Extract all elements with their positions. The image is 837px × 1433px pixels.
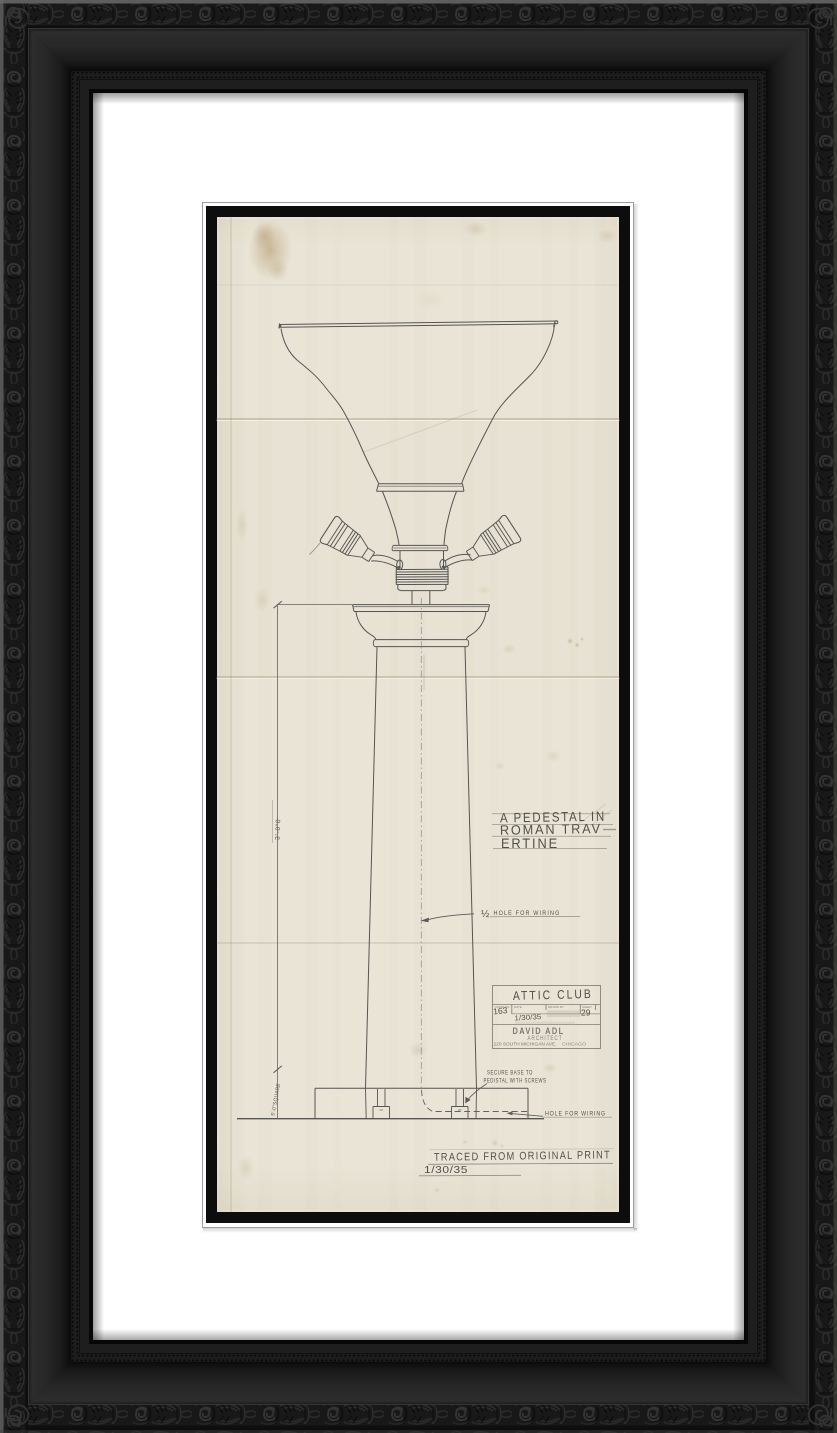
svg-text:PEDISTAL WITH SCREWS: PEDISTAL WITH SCREWS: [484, 1077, 547, 1084]
svg-text:ERTINE: ERTINE: [501, 836, 559, 851]
svg-text:DRAWN BY: DRAWN BY: [548, 1005, 564, 1009]
svg-text:SECURE BASE TO: SECURE BASE TO: [487, 1070, 533, 1077]
svg-text:DATE: DATE: [514, 1005, 522, 1009]
svg-text:½: ½: [481, 909, 490, 920]
svg-text:163: 163: [493, 1005, 508, 1016]
svg-text:3'-0"0: 3'-0"0: [275, 818, 283, 840]
svg-text:ARCHITECT: ARCHITECT: [528, 1036, 563, 1042]
svg-text:29: 29: [581, 1007, 591, 1017]
svg-text:HOLE FOR WIRING: HOLE FOR WIRING: [545, 1111, 606, 1118]
svg-text:CHICAGO: CHICAGO: [562, 1041, 586, 1047]
svg-text:220 SOUTH MICHIGAN AVE.: 220 SOUTH MICHIGAN AVE.: [494, 1041, 557, 1047]
svg-text:ATTIC CLUB: ATTIC CLUB: [513, 987, 593, 1003]
svg-text:1/30/35: 1/30/35: [424, 1164, 468, 1176]
svg-text:TRACED FROM ORIGINAL PRINT: TRACED FROM ORIGINAL PRINT: [434, 1149, 611, 1163]
svg-text:1/30/35: 1/30/35: [514, 1012, 541, 1022]
svg-text:HOLE FOR WIRING: HOLE FOR WIRING: [494, 910, 561, 917]
